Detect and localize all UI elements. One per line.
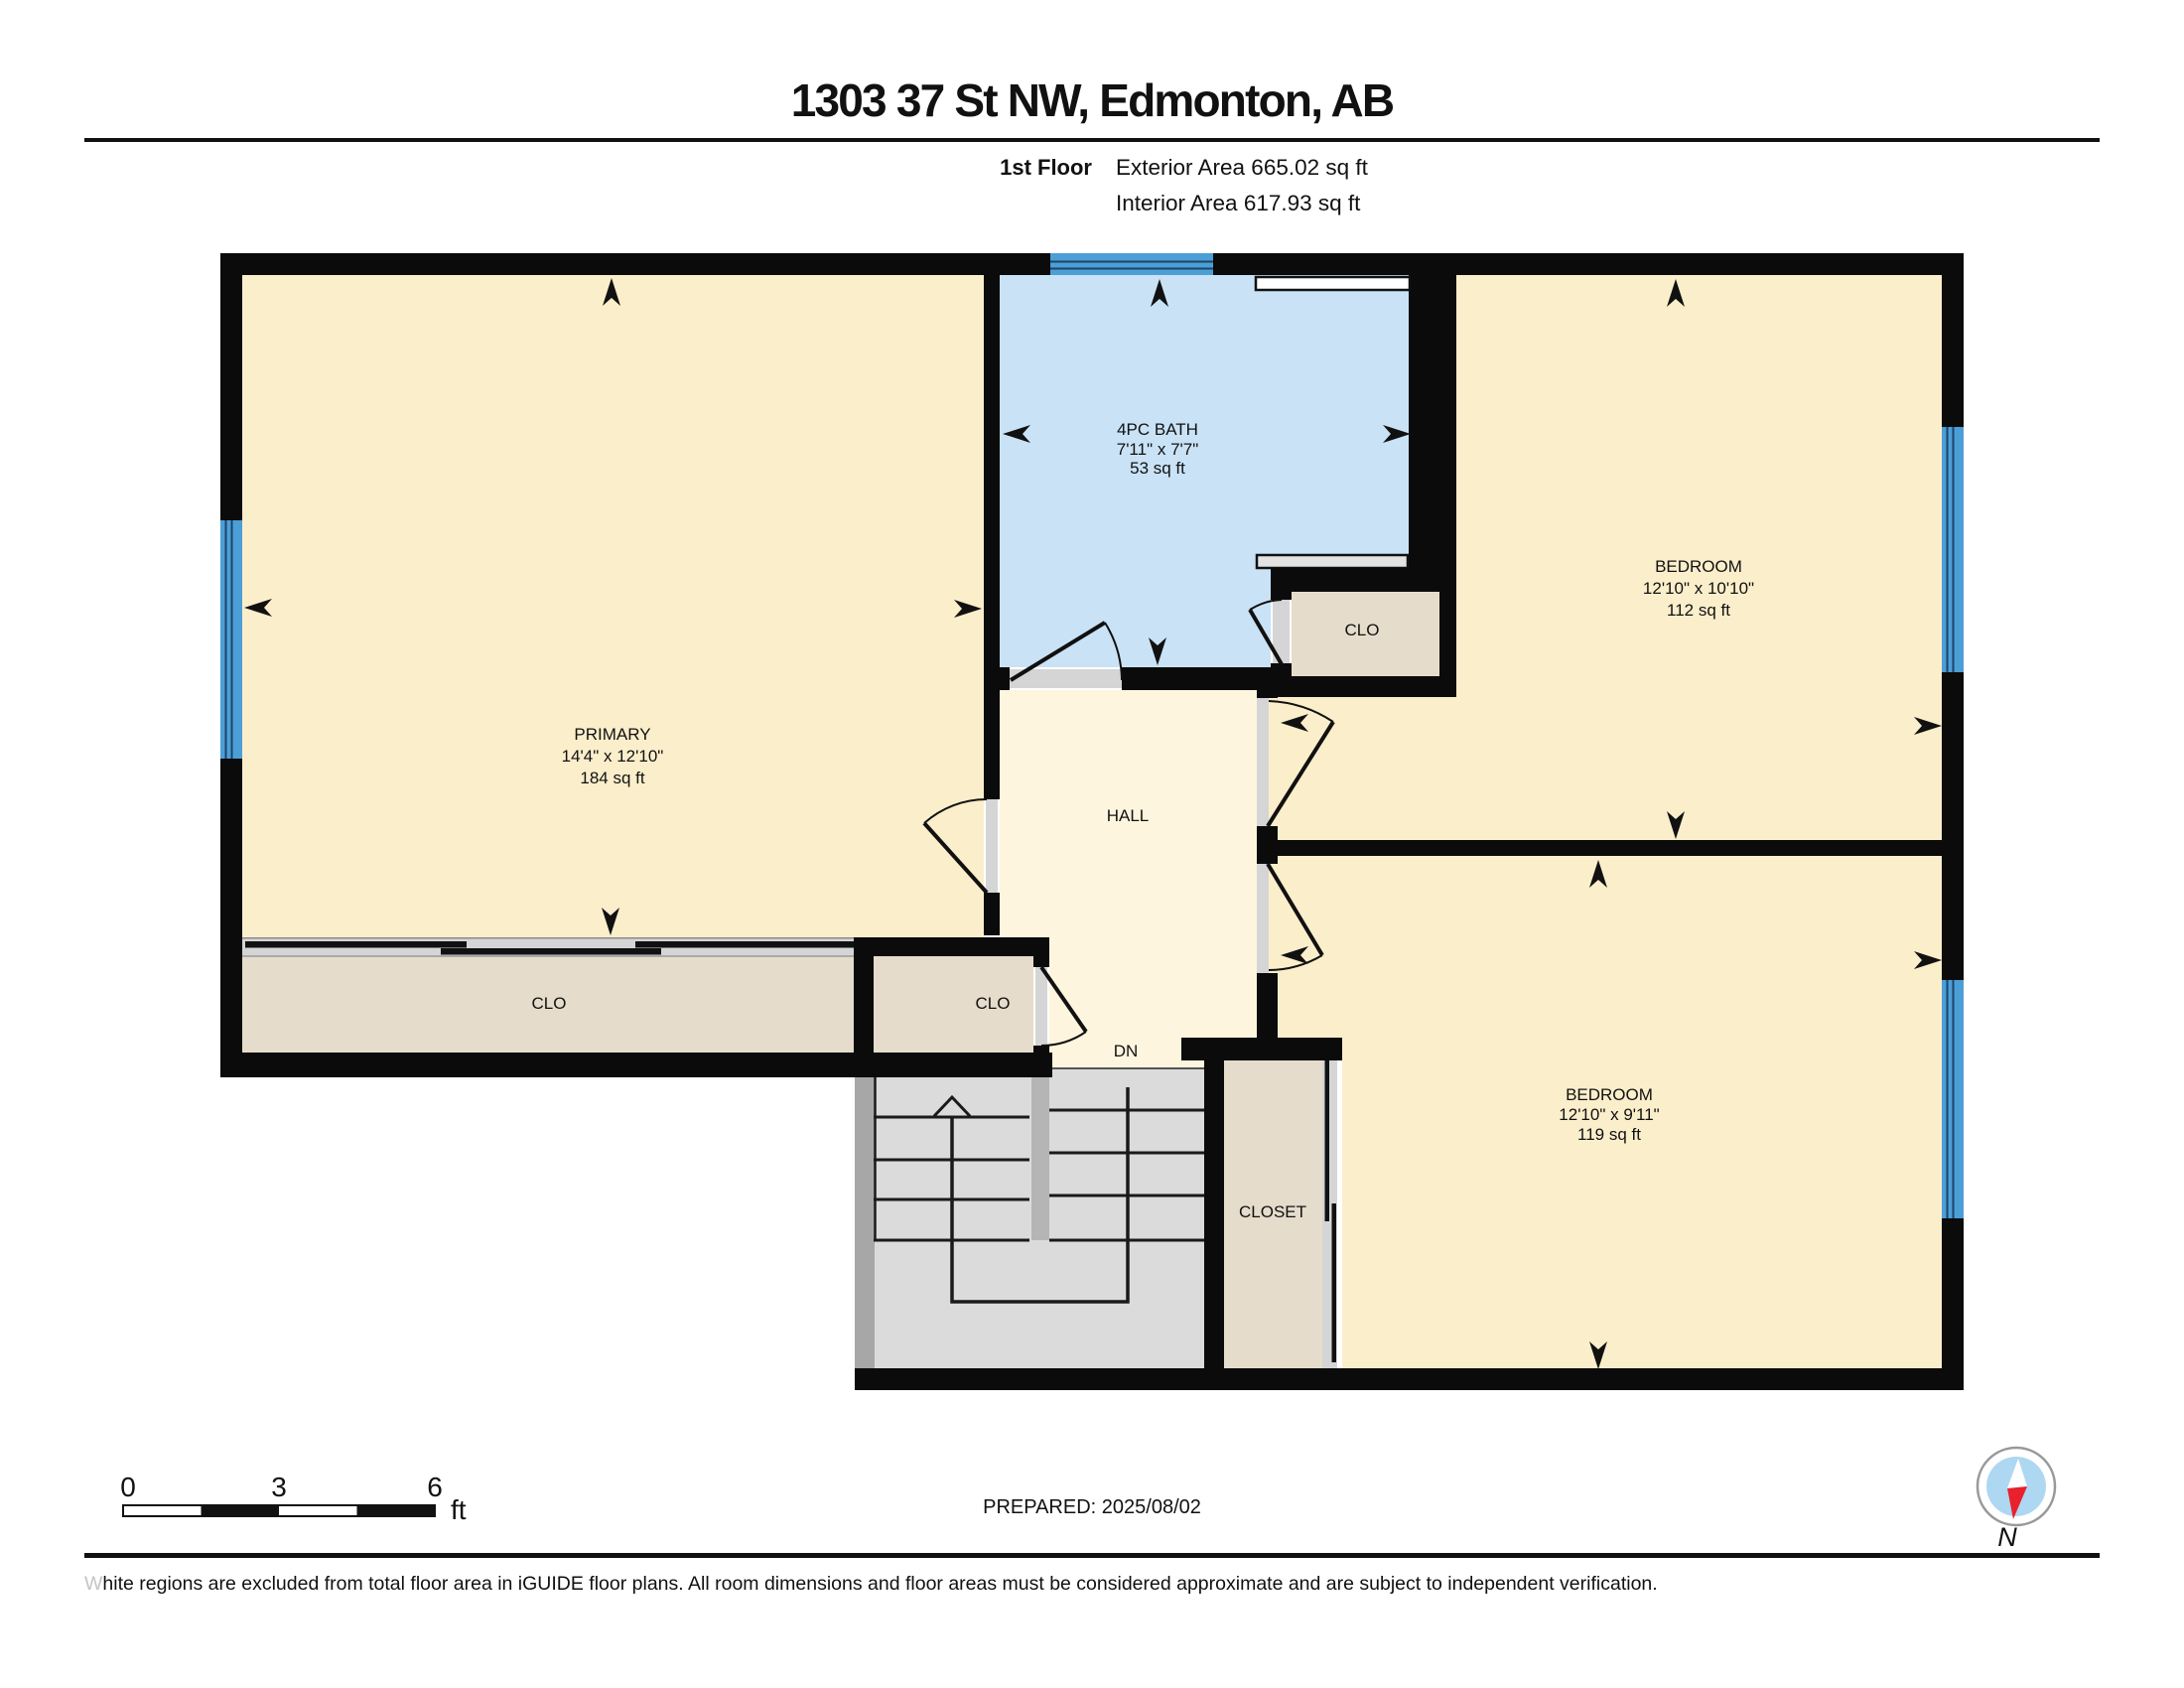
svg-text:HALL: HALL — [1107, 806, 1150, 825]
svg-text:12'10" x 10'10": 12'10" x 10'10" — [1643, 579, 1754, 598]
svg-text:119 sq ft: 119 sq ft — [1577, 1125, 1641, 1144]
svg-text:3: 3 — [271, 1472, 287, 1502]
svg-text:12'10" x 9'11": 12'10" x 9'11" — [1559, 1105, 1659, 1124]
svg-text:N: N — [1997, 1522, 2017, 1552]
svg-text:PRIMARY: PRIMARY — [574, 725, 650, 744]
svg-text:BEDROOM: BEDROOM — [1566, 1085, 1653, 1104]
svg-text:Exterior Area 665.02 sq ft: Exterior Area 665.02 sq ft — [1116, 155, 1369, 180]
svg-text:1303 37 St NW, Edmonton, AB: 1303 37 St NW, Edmonton, AB — [791, 74, 1394, 126]
svg-text:CLO: CLO — [976, 994, 1011, 1013]
svg-text:PREPARED: 2025/08/02: PREPARED: 2025/08/02 — [983, 1496, 1201, 1518]
svg-text:CLO: CLO — [532, 994, 567, 1013]
svg-text:184 sq ft: 184 sq ft — [580, 769, 644, 787]
svg-text:53 sq ft: 53 sq ft — [1130, 459, 1185, 478]
svg-text:CLOSET: CLOSET — [1239, 1202, 1306, 1221]
svg-text:7'11" x 7'7": 7'11" x 7'7" — [1117, 440, 1199, 459]
svg-text:White regions are excluded fro: White regions are excluded from total fl… — [84, 1573, 1658, 1595]
svg-text:1st Floor: 1st Floor — [1000, 155, 1092, 180]
svg-text:Interior Area 617.93 sq ft: Interior Area 617.93 sq ft — [1116, 191, 1361, 215]
svg-text:CLO: CLO — [1345, 621, 1380, 639]
svg-text:0: 0 — [120, 1472, 136, 1502]
svg-text:6: 6 — [427, 1472, 443, 1502]
svg-text:112 sq ft: 112 sq ft — [1667, 601, 1730, 620]
svg-text:DN: DN — [1114, 1042, 1139, 1060]
svg-text:14'4" x 12'10": 14'4" x 12'10" — [562, 747, 664, 766]
svg-text:BEDROOM: BEDROOM — [1655, 557, 1742, 576]
svg-text:ft: ft — [451, 1494, 467, 1525]
svg-text:4PC BATH: 4PC BATH — [1117, 420, 1198, 439]
